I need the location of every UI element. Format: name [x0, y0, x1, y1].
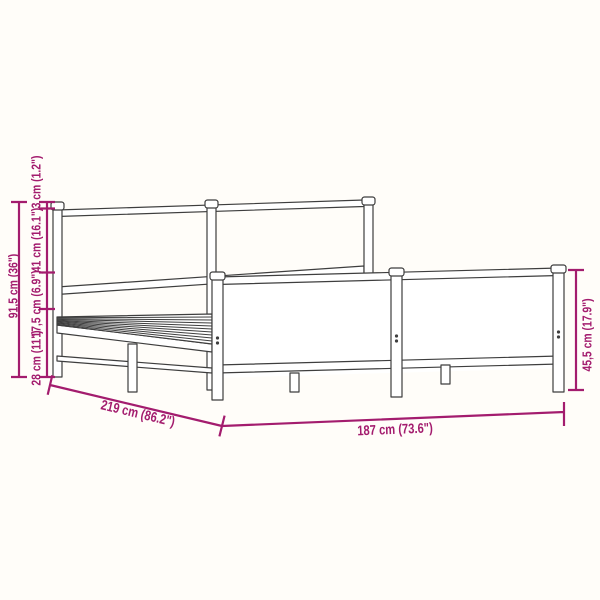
bed-frame-drawing: [51, 197, 566, 400]
slat-support-leg: [128, 344, 137, 392]
dim-footboard-height: 45,5 cm (17.9"): [568, 270, 595, 390]
footboard-middle-post-cap: [389, 268, 404, 276]
footboard-height-label: 45,5 cm (17.9"): [581, 298, 595, 371]
headboard-right-post-cap: [362, 197, 375, 205]
footboard-panel-foot-left: [290, 373, 299, 392]
dim-height-segments: 3 cm (1.2") 41 cm (16.1") 17,5 cm (6.9")…: [30, 155, 55, 385]
platform-floor-clearance-label: 28 cm (11"): [30, 330, 44, 385]
footboard-right-post-cap: [551, 265, 566, 273]
headboard-left-post: [53, 208, 62, 377]
top-section-label: 3 cm (1.2"): [30, 155, 44, 208]
total-length-label: 219 cm (86.2"): [99, 397, 176, 430]
dim-total-width: 187 cm (73.6"): [222, 402, 564, 439]
diagram-canvas: 91,5 cm (36") 3 cm (1.2") 41 cm (16.1") …: [0, 0, 600, 600]
total-width-label: 187 cm (73.6"): [357, 420, 433, 438]
slat-platform: [57, 314, 212, 392]
footboard: [210, 265, 566, 400]
headboard-middle-post-cap: [205, 200, 218, 208]
footboard-left-post-cap: [210, 272, 225, 280]
headboard-panel-height-label: 41 cm (16.1"): [30, 208, 44, 273]
footboard-panel-foot-right: [441, 365, 450, 384]
total-height-label: 91,5 cm (36"): [7, 254, 21, 319]
dim-total-height: 91,5 cm (36"): [7, 202, 27, 377]
rail-to-platform-label: 17,5 cm (6.9"): [30, 270, 44, 337]
